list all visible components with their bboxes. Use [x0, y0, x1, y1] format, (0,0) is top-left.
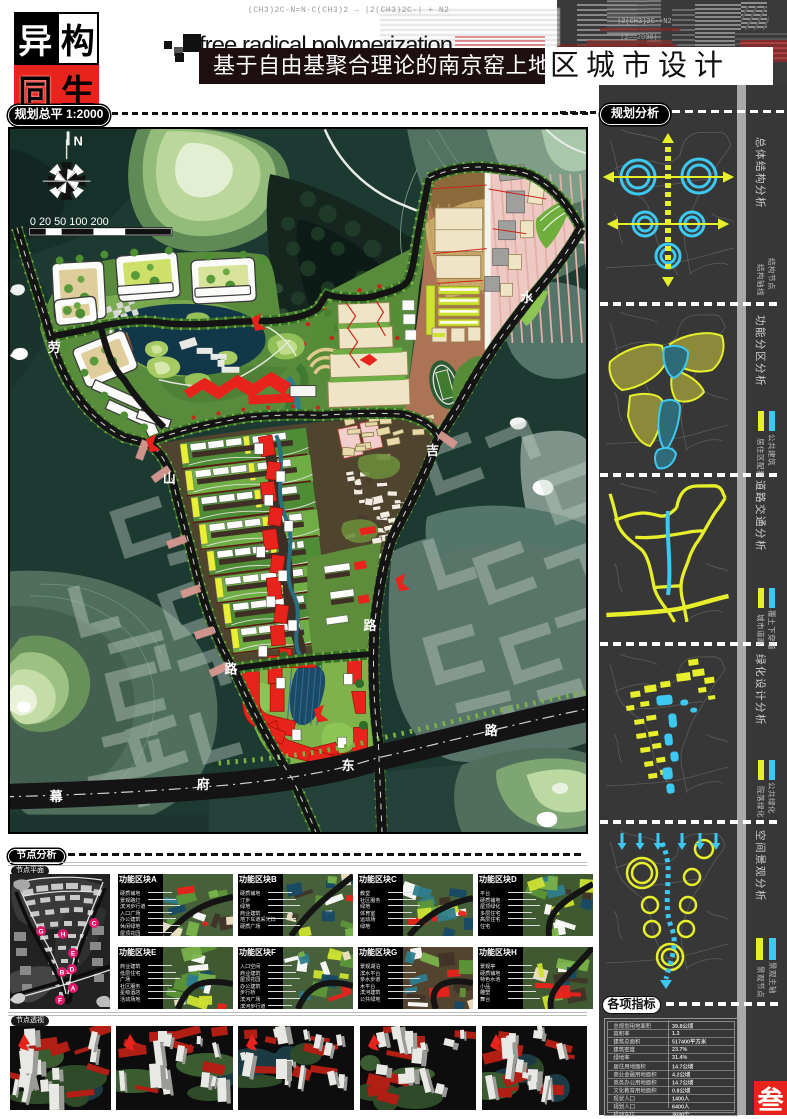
svg-text:N: N	[74, 133, 83, 148]
svg-text:东: 东	[342, 758, 355, 773]
svg-text:G: G	[38, 928, 43, 935]
svg-text:幕: 幕	[49, 789, 64, 804]
svg-text:劳: 劳	[48, 340, 61, 355]
svg-text:水: 水	[520, 290, 534, 305]
svg-text:F: F	[58, 997, 62, 1004]
svg-text:路: 路	[364, 618, 377, 633]
svg-text:山: 山	[163, 471, 176, 486]
svg-text:路: 路	[485, 723, 498, 738]
svg-text:吉: 吉	[426, 443, 439, 458]
svg-text:0 20 50 100 200: 0 20 50 100 200	[30, 216, 109, 228]
svg-text:C: C	[92, 920, 97, 927]
svg-text:H: H	[61, 931, 66, 938]
svg-text:A: A	[71, 985, 76, 992]
svg-text:路: 路	[225, 662, 238, 677]
svg-text:府: 府	[197, 777, 210, 792]
svg-text:D: D	[70, 966, 75, 973]
svg-text:B: B	[60, 969, 65, 976]
svg-text:E: E	[71, 950, 76, 957]
